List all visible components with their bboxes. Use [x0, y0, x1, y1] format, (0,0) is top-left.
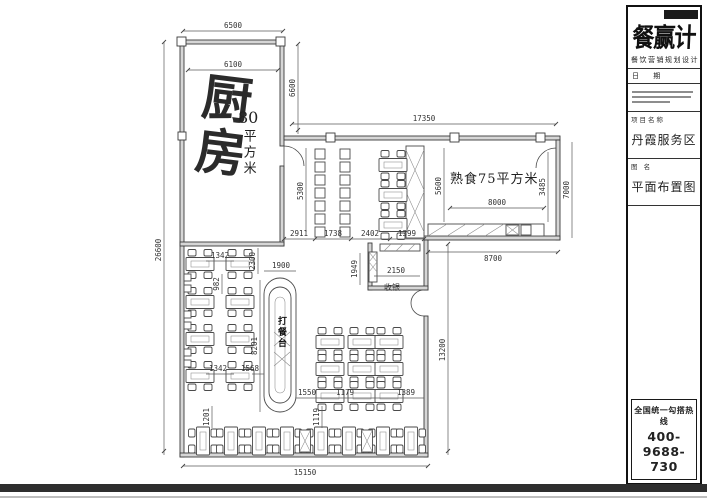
svg-text:1201: 1201 — [202, 408, 211, 426]
date-row: 日 期 — [628, 69, 700, 84]
wall-bench — [184, 274, 191, 292]
svg-text:1550: 1550 — [298, 388, 317, 397]
svg-text:1900: 1900 — [272, 261, 291, 270]
project-name: 丹霞服务区 — [631, 131, 697, 148]
svg-text:1119: 1119 — [312, 408, 321, 426]
drawing-name: 平面布置图 — [631, 178, 697, 195]
hotline-label: 全国统一勾搭热线 — [633, 405, 695, 427]
dining-table — [335, 427, 364, 455]
dining-table — [273, 427, 302, 455]
svg-text:8000: 8000 — [488, 198, 507, 207]
svg-text:13200: 13200 — [438, 338, 447, 361]
svg-text:1568: 1568 — [241, 364, 260, 373]
dining-table — [316, 328, 344, 357]
svg-text:5600: 5600 — [434, 176, 443, 195]
project-section: 项目名称 丹霞服务区 — [628, 112, 700, 159]
svg-text:1342: 1342 — [209, 364, 227, 373]
dining-table — [397, 427, 426, 455]
dining-table — [375, 355, 403, 384]
dining-table — [348, 328, 376, 357]
kitchen-area-unit: 平方米 — [239, 129, 258, 177]
svg-text:6100: 6100 — [224, 60, 243, 69]
dining-table — [189, 427, 218, 455]
planter-box — [300, 430, 311, 452]
sheet-bottom-edge — [0, 496, 707, 498]
dining-table — [245, 427, 274, 455]
floor-plan-sheet: 6500 6100 6600 26600 17350 5300 2911 173… — [0, 0, 707, 500]
kitchen-area-number: 80 — [238, 108, 258, 127]
svg-text:8201: 8201 — [250, 337, 259, 355]
svg-text:1738: 1738 — [324, 229, 343, 238]
hotline-number: 400-9688-730 — [633, 429, 695, 474]
ramp-partition — [406, 146, 424, 238]
cashier-label: 收银 — [384, 282, 400, 293]
svg-text:26600: 26600 — [154, 238, 163, 261]
svg-text:6500: 6500 — [224, 21, 243, 30]
title-block-empty-area — [628, 206, 700, 397]
buffet-queue-right — [340, 149, 350, 237]
drawing-section: 图 名 平面布置图 — [628, 159, 700, 206]
svg-text:8700: 8700 — [484, 254, 503, 263]
svg-text:3485: 3485 — [538, 178, 547, 196]
svg-text:1399: 1399 — [398, 229, 416, 238]
svg-text:2300: 2300 — [248, 251, 257, 270]
svg-text:2402: 2402 — [361, 229, 379, 238]
svg-text:982: 982 — [212, 277, 221, 291]
svg-text:5300: 5300 — [296, 181, 305, 200]
fine-print — [628, 84, 700, 112]
cooked-food-door-arc — [536, 148, 556, 168]
dining-double-door-arc — [411, 290, 424, 316]
wall-bench — [184, 311, 191, 329]
svg-text:6600: 6600 — [288, 78, 297, 97]
dining-table — [316, 355, 344, 384]
brand-logo: 餐赢计 — [627, 17, 701, 55]
svg-text:1342: 1342 — [211, 251, 229, 260]
svg-text:7000: 7000 — [562, 180, 571, 199]
dining-table — [348, 355, 376, 384]
svg-text:17350: 17350 — [413, 114, 436, 123]
dining-table — [375, 328, 403, 357]
dining-table — [379, 151, 407, 180]
wall-bench — [184, 349, 191, 367]
serving-island-label: 打餐台 — [275, 316, 288, 349]
drawing-label: 图 名 — [631, 161, 697, 171]
dining-table — [379, 181, 407, 210]
buffet-queue-left — [315, 149, 325, 237]
kitchen-area-label: 80 平方米 — [238, 108, 258, 177]
svg-text:1949: 1949 — [350, 260, 359, 278]
planter-box — [362, 430, 373, 452]
hotline-box: 全国统一勾搭热线 400-9688-730 — [631, 399, 697, 480]
title-block: 餐赢计 餐饮营销规划设计 日 期 项目名称 丹霞服务区 图 名 平面布置图 全国… — [626, 5, 702, 485]
cooked-food-room-label: 熟食75平方米 — [450, 168, 539, 187]
svg-text:2911: 2911 — [290, 229, 308, 238]
svg-text:2150: 2150 — [387, 266, 406, 275]
sheet-bottom-band — [0, 484, 707, 492]
kitchen-door-arc — [284, 146, 304, 166]
svg-text:15150: 15150 — [294, 468, 317, 477]
svg-text:1179: 1179 — [336, 388, 354, 397]
floor-plan-svg: 6500 6100 6600 26600 17350 5300 2911 173… — [0, 0, 630, 500]
project-label: 项目名称 — [631, 114, 697, 124]
dining-table — [226, 288, 254, 317]
svg-text:1389: 1389 — [397, 388, 415, 397]
dining-table — [217, 427, 246, 455]
